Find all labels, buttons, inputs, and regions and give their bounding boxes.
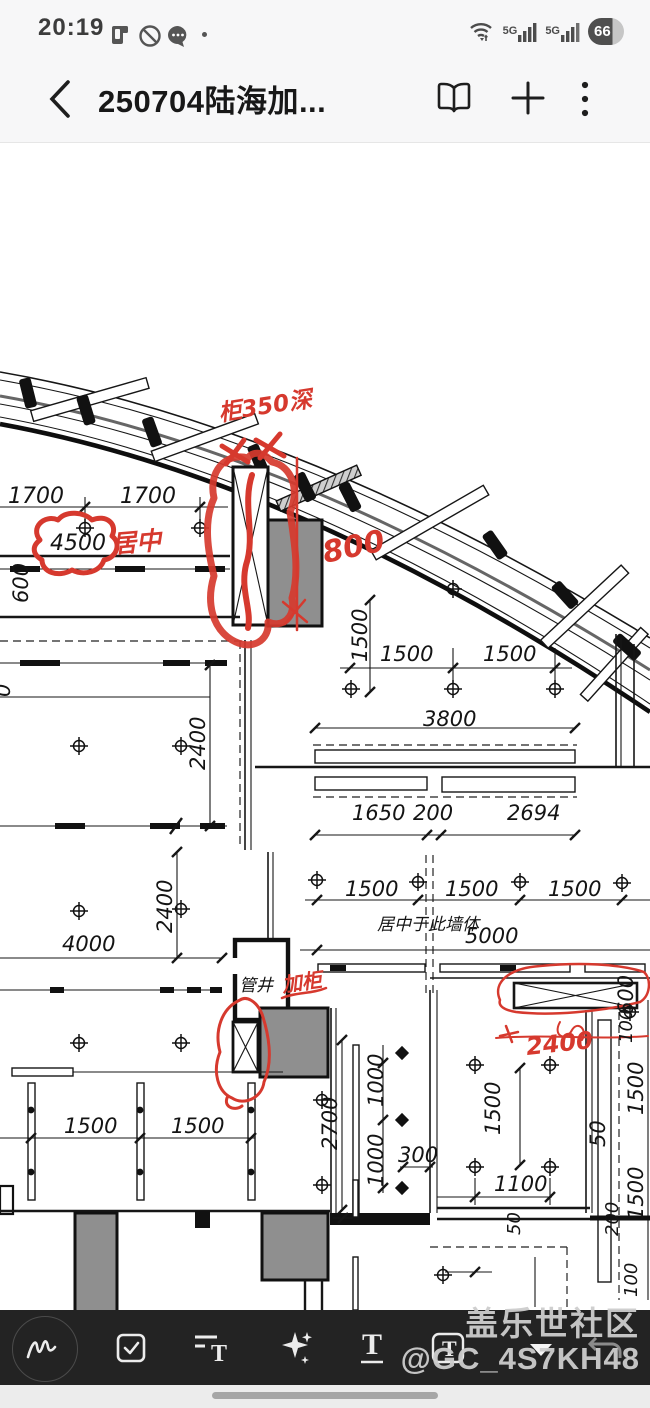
- more-menu-icon[interactable]: [578, 80, 592, 118]
- dim-label: 100: [621, 1263, 642, 1297]
- dim-label: 50: [586, 1120, 610, 1147]
- dim-label: 2694: [507, 801, 560, 825]
- dim-label: 1500: [624, 1167, 648, 1220]
- dim-label: 4000: [62, 932, 115, 956]
- diamond-symbol: [395, 1113, 409, 1127]
- dim-label: 1700: [8, 484, 64, 509]
- chat-bubble-icon: [166, 24, 190, 48]
- clock: 20:19: [38, 14, 104, 42]
- back-button[interactable]: [44, 78, 78, 120]
- diamond-symbols: [395, 1046, 409, 1195]
- checklist-button[interactable]: [108, 1310, 154, 1385]
- ceiling-target-symbol: [434, 1266, 452, 1284]
- ai-sparkles-button[interactable]: [272, 1310, 322, 1385]
- signal-bars-icon-2: 5G: [545, 21, 581, 43]
- dim-label: 300: [398, 1143, 438, 1167]
- gesture-bar-area: [0, 1385, 650, 1408]
- dim-label: 1500: [483, 642, 536, 666]
- floor-plan-canvas[interactable]: 1700170045006000240015001500150038001650…: [0, 0, 650, 1408]
- dim-label: 1500: [380, 642, 433, 666]
- edit-toolbar: T T T 盖乐世社区 @GC_4S7KH48: [0, 1310, 650, 1385]
- fixture-dot: [248, 1107, 255, 1114]
- dim-label: 3800: [423, 707, 476, 731]
- reader-mode-icon[interactable]: [435, 80, 473, 116]
- handwriting-pen-button[interactable]: [22, 1310, 66, 1385]
- red-annotation-label: 柜350深: [217, 386, 318, 427]
- dim-label: 0: [0, 684, 15, 697]
- dim-label: 1500: [345, 877, 398, 901]
- dim-label: 2400: [186, 717, 210, 770]
- facade-fin: [551, 580, 580, 610]
- dim-label: 50: [504, 1212, 525, 1235]
- dim-label: 200: [602, 1202, 623, 1236]
- dim-label: 1500: [171, 1114, 224, 1138]
- text-style-button[interactable]: T: [348, 1310, 394, 1385]
- app-bar: 250704陆海加...: [0, 56, 650, 142]
- collapse-toolbar-icon[interactable]: [528, 1342, 554, 1358]
- document-title[interactable]: 250704陆海加...: [98, 76, 326, 121]
- home-indicator[interactable]: [212, 1392, 438, 1399]
- undo-icon[interactable]: [588, 1334, 622, 1362]
- dim-label: 管井: [239, 976, 275, 996]
- battery-badge: 66: [588, 18, 624, 45]
- dim-label: 100: [616, 1009, 637, 1043]
- ceiling-target-symbol: [342, 680, 360, 698]
- dim-label: 1500: [64, 1114, 117, 1138]
- diamond-symbol: [395, 1181, 409, 1195]
- dim-label: 1650: [352, 801, 405, 825]
- dim-label: 600: [9, 563, 33, 603]
- add-page-icon[interactable]: [510, 80, 546, 116]
- network-badge-2: 5G: [545, 25, 560, 37]
- wifi-traffic-icon: [469, 20, 496, 44]
- dimension-labels: 1700170045006000240015001500150038001650…: [0, 484, 648, 1297]
- ceiling-target-symbol: [511, 873, 529, 891]
- ceiling-target-symbol: [308, 871, 326, 889]
- dim-label: 1000: [364, 1134, 388, 1187]
- text-box-button[interactable]: T: [424, 1310, 474, 1385]
- fixture-dot: [137, 1107, 144, 1114]
- facade-fin: [141, 416, 163, 448]
- ceiling-target-symbol: [313, 1176, 331, 1194]
- ceiling-target-symbol: [70, 737, 88, 755]
- red-annotation-label: 2400: [525, 1026, 594, 1061]
- dim-label: 200: [413, 801, 453, 825]
- dim-label: 2400: [153, 880, 177, 933]
- dim-label: 1500: [445, 877, 498, 901]
- mute-circle-icon: [138, 24, 162, 48]
- notification-dot: [202, 32, 207, 37]
- ceiling-target-symbol: [444, 680, 462, 698]
- ceiling-target-symbol: [466, 1158, 484, 1176]
- dim-label: 1500: [548, 877, 601, 901]
- dim-label: 1500: [348, 609, 372, 662]
- network-badge: 5G: [503, 25, 518, 37]
- ceiling-target-symbol: [466, 1056, 484, 1074]
- dim-label: 1700: [120, 484, 176, 509]
- facade-fin: [19, 377, 38, 409]
- ceiling-target-symbol: [70, 902, 88, 920]
- text-style-glyph: T: [362, 1328, 382, 1361]
- text-format-button[interactable]: T: [188, 1310, 238, 1385]
- red-annotation-label: 加柜: [279, 967, 327, 997]
- fixture-dot: [248, 1169, 255, 1176]
- ceiling-target-symbol: [70, 1034, 88, 1052]
- fixture-dot: [28, 1169, 35, 1176]
- fixture-dot: [28, 1107, 35, 1114]
- status-bar: 20:19 5G 5G 66: [0, 0, 650, 56]
- diamond-symbol: [395, 1046, 409, 1060]
- dim-label: 1500: [624, 1062, 648, 1115]
- sim-device-icon: [108, 24, 130, 48]
- dim-label: 1000: [364, 1054, 388, 1107]
- header-divider: [0, 142, 650, 143]
- red-annotation-label: 居中: [109, 525, 165, 559]
- dim-label: 4500: [50, 531, 106, 556]
- ceiling-target-symbol: [172, 1034, 190, 1052]
- svg-text:T: T: [442, 1336, 457, 1361]
- central-ceiling: [255, 595, 650, 995]
- ceiling-target-symbol: [613, 874, 631, 892]
- dim-label: 2700: [318, 1097, 342, 1150]
- dim-label: 1100: [494, 1172, 547, 1196]
- fixture-dot: [137, 1169, 144, 1176]
- signal-bars-icon: 5G: [503, 21, 539, 43]
- dim-label: 1500: [481, 1082, 505, 1135]
- ceiling-target-symbol: [409, 873, 427, 891]
- dim-label: 5000: [465, 924, 518, 948]
- facade-fin: [338, 481, 362, 513]
- svg-text:T: T: [211, 1341, 227, 1365]
- ceiling-target-symbol: [546, 680, 564, 698]
